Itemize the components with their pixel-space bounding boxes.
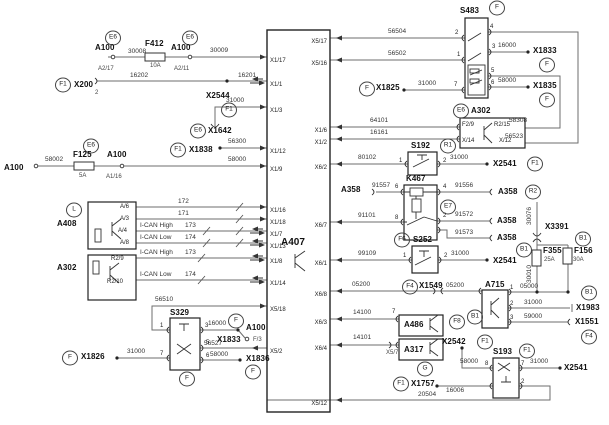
wire-59000: 59000 <box>524 314 542 321</box>
wire-14101: 14101 <box>353 335 371 342</box>
pin-s483-1: 1 <box>457 52 460 58</box>
a407-pin-X5/12: X5/12 <box>311 401 327 407</box>
pin-a715-1: 1 <box>510 285 513 291</box>
sub-30a: 30A <box>573 257 584 263</box>
loc-f-x1835: F <box>539 93 555 108</box>
comp-a358-2: A358 <box>498 188 518 196</box>
a407-pin-X6/4: X6/4 <box>315 346 327 352</box>
loc-f-x1836: F <box>245 365 261 380</box>
comp-s192: S192 <box>411 142 430 150</box>
comp-a358-1: A358 <box>341 186 361 194</box>
a407-pin-X1/16: X1/16 <box>270 208 286 214</box>
pin-a302-f2-9: F2/9 <box>462 122 474 128</box>
pin-s483-5: 5 <box>491 68 494 74</box>
comp-a302-right: A302 <box>471 107 491 115</box>
pin-a302-x-14: X/14 <box>462 138 474 144</box>
loc-f1-x200: F1 <box>55 78 71 93</box>
wire-16000-s329: 16000 <box>208 321 226 328</box>
wire-80102: 80102 <box>358 155 376 162</box>
comp-x1833-tr: X1833 <box>533 47 557 55</box>
sub-x5-7: X5/7 <box>386 350 398 356</box>
label-layer: A407E6A100A2/1730008F41210AE6A100A2/1130… <box>0 0 609 425</box>
pin-k467-8: 8 <box>395 215 398 221</box>
wire-31000-s252: 31000 <box>451 251 469 258</box>
comp-x2541-2: X2541 <box>493 257 517 265</box>
loc-e6-x1642: E6 <box>190 124 206 139</box>
a407-pin-X6/2: X6/2 <box>315 165 327 171</box>
sub-x200-pin2: 2 <box>95 90 98 96</box>
loc-f8: F8 <box>449 315 465 330</box>
pin-a408-a3: A/3 <box>120 216 129 222</box>
pin-s329-6: 6 <box>206 353 209 359</box>
a407-pin-X6/7: X6/7 <box>315 223 327 229</box>
wire-58308: 58308 <box>509 118 527 125</box>
loc-f4-x1549: F4 <box>402 280 418 295</box>
a407-pin-X1/7: X1/7 <box>270 232 282 238</box>
pin-s483-7: 7 <box>454 82 457 88</box>
a407-pin-X1/3: X1/3 <box>270 108 282 114</box>
a407-pin-X1/8: X1/8 <box>270 259 282 265</box>
comp-a358-4: A358 <box>497 234 517 242</box>
comp-x2541-3: X2541 <box>564 364 588 372</box>
wire-16201: 16201 <box>238 73 256 80</box>
a407-pin-X1/17: X1/17 <box>270 58 286 64</box>
wire-ican-low-1: I-CAN Low <box>140 235 171 242</box>
wire-30010: 30010 <box>527 265 534 283</box>
sub-10a: 10A <box>150 63 161 69</box>
wire-31000-x1826: 31000 <box>127 349 145 356</box>
wire-ican-high-1: I-CAN High <box>140 223 173 230</box>
pin-s193-2: 2 <box>521 379 524 385</box>
loc-b1-a715: B1 <box>467 310 483 325</box>
a407-pin-X5/2: X5/2 <box>270 349 282 355</box>
pin-a302-r2-15: R2/15 <box>494 122 510 128</box>
a407-pin-X1/2: X1/2 <box>315 140 327 146</box>
wire-174-1: 174 <box>185 235 196 242</box>
wire-91573: 91573 <box>455 230 473 237</box>
wire-31000-x1825: 31000 <box>418 81 436 88</box>
loc-f-s483: F <box>489 1 505 16</box>
wire-16202: 16202 <box>130 73 148 80</box>
wire-31000-a715: 31000 <box>524 300 542 307</box>
a407-pin-X5/17: X5/17 <box>311 39 327 45</box>
pin-s483-2: 2 <box>455 30 458 36</box>
loc-r2: R2 <box>525 185 541 200</box>
comp-f355: F355 <box>543 247 562 255</box>
pin-a715-3: 3 <box>510 315 513 321</box>
loc-f-s329: F <box>179 372 195 387</box>
loc-f1-x2541-1: F1 <box>527 157 543 172</box>
wire-64101: 64101 <box>370 118 388 125</box>
wire-30009: 30009 <box>210 48 228 55</box>
comp-a358-3: A358 <box>497 217 517 225</box>
a407-pin-X5/16: X5/16 <box>311 61 327 67</box>
comp-f156: F156 <box>574 247 593 255</box>
pin-k467-2: 2 <box>443 213 446 219</box>
comp-a302-left: A302 <box>57 264 77 272</box>
wiring-diagram: A407E6A100A2/1730008F41210AE6A100A2/1130… <box>0 0 609 425</box>
comp-x1549: X1549 <box>419 282 443 290</box>
a407-pin-X1/18: X1/18 <box>270 220 286 226</box>
comp-s252: S252 <box>413 236 432 244</box>
wire-56510: 56510 <box>155 297 173 304</box>
wire-91101: 91101 <box>358 213 376 220</box>
loc-f1-x1838: F1 <box>170 143 186 158</box>
pin-s252-2: 2 <box>444 253 447 259</box>
comp-k467: K467 <box>406 175 426 183</box>
comp-f412: F412 <box>145 40 164 48</box>
loc-b1-f156: B1 <box>575 232 591 247</box>
a407-pin-X1/12: X1/12 <box>270 149 286 155</box>
loc-l-a408: L <box>66 203 82 218</box>
a407-pin-X1/6: X1/6 <box>315 128 327 134</box>
loc-f1-x2542: F1 <box>477 335 493 350</box>
loc-f1-s193: F1 <box>519 344 535 359</box>
pin-s483-4: 4 <box>490 24 493 30</box>
pin-s329-1: 1 <box>160 323 163 329</box>
sub-25a: 25A <box>544 257 555 263</box>
wire-171: 171 <box>178 211 189 218</box>
comp-a317: A317 <box>404 346 424 354</box>
a407-pin-X5/18: X5/18 <box>270 307 286 313</box>
a407-pin-X6/3: X6/3 <box>315 320 327 326</box>
sub-a2-11: A2/11 <box>174 66 189 72</box>
pin-a408-a4: A/4 <box>118 228 127 234</box>
loc-b1-f355: B1 <box>516 243 532 258</box>
wire-58000-s483: 58000 <box>498 78 516 85</box>
a407-pin-X6/8: X6/8 <box>315 292 327 298</box>
pin-a486-7: 7 <box>392 309 395 315</box>
loc-f1-x1757: F1 <box>393 377 409 392</box>
wire-31000-x1642: 31000 <box>226 98 244 105</box>
wire-91556: 91556 <box>455 183 473 190</box>
comp-x1757: X1757 <box>411 380 435 388</box>
loc-f-x1825: F <box>359 82 375 97</box>
loc-e6-a302r: E6 <box>453 104 469 119</box>
pin-k467-6: 6 <box>395 184 398 190</box>
pin-s193-7: 7 <box>521 361 524 367</box>
wire-58002: 58002 <box>45 157 63 164</box>
comp-s329: S329 <box>170 309 189 317</box>
wire-05200-2: 05200 <box>446 283 464 290</box>
wire-174-2: 174 <box>185 272 196 279</box>
wire-16161: 16161 <box>370 130 388 137</box>
wire-58000-s329: 58000 <box>210 352 228 359</box>
wire-05000: 05000 <box>520 284 538 291</box>
wire-58000-s193: 58000 <box>460 359 478 366</box>
comp-s193: S193 <box>493 348 512 356</box>
pin-s192-1: 1 <box>399 158 402 164</box>
wire-ican-high-2: I-CAN High <box>140 250 173 257</box>
sub-a2-17: A2/17 <box>98 66 114 72</box>
comp-f125: F125 <box>73 151 92 159</box>
a407-pin-X6/1: X6/1 <box>315 261 327 267</box>
sub-5a: 5A <box>79 173 86 179</box>
wire-56504: 56504 <box>388 29 406 36</box>
wire-ican-low-2: I-CAN Low <box>140 272 171 279</box>
loc-f-x1833: F <box>539 58 555 73</box>
loc-g: G <box>417 362 433 377</box>
comp-x200: X200 <box>74 81 93 89</box>
wire-58000-x19: 58000 <box>228 157 246 164</box>
a407-pin-X1/13: X1/13 <box>270 244 286 250</box>
pin-s483-6: 6 <box>491 80 494 86</box>
wire-05200-1: 05200 <box>352 282 370 289</box>
comp-a100-4: A100 <box>107 151 127 159</box>
comp-x1983: X1983 <box>576 304 600 312</box>
wire-173-2: 173 <box>185 250 196 257</box>
pin-a302-x-12: X/12 <box>499 138 511 144</box>
comp-x1826: X1826 <box>81 353 105 361</box>
comp-x2542: X2542 <box>442 338 466 346</box>
wire-172: 172 <box>178 199 189 206</box>
wire-56300: 56300 <box>228 139 246 146</box>
wire-173-1: 173 <box>185 223 196 230</box>
loc-f-a100-s329: F <box>228 314 244 329</box>
pin-s329-7: 7 <box>160 351 163 357</box>
comp-x1838: X1838 <box>189 146 213 154</box>
comp-a715: A715 <box>485 281 505 289</box>
loc-f-x1826: F <box>62 351 78 366</box>
pin-s483-3: 3 <box>492 44 495 50</box>
loc-f6: F6 <box>394 233 410 248</box>
sub-a1-16: A1/16 <box>106 174 122 180</box>
loc-f4-x1551: F4 <box>581 330 597 345</box>
pin-s192-2: 2 <box>443 158 446 164</box>
a407-pin-X1/9: X1/9 <box>270 167 282 173</box>
wire-31000-s192: 31000 <box>450 155 468 162</box>
pin-a715-2: 2 <box>510 301 513 307</box>
comp-a100-3: A100 <box>4 164 24 172</box>
loc-r1: R1 <box>440 139 456 154</box>
sub-f3: F/3 <box>253 337 262 343</box>
pin-a302-r2-9: R2/9 <box>111 256 124 262</box>
wire-16000-s483: 16000 <box>498 43 516 50</box>
comp-a100-5: A100 <box>246 324 266 332</box>
comp-a486: A486 <box>404 321 424 329</box>
pin-s252-1: 1 <box>403 253 406 259</box>
a407-pin-X1/1: X1/1 <box>270 82 282 88</box>
pin-a302-r2-10: R2/10 <box>107 279 123 285</box>
wire-16006: 16006 <box>446 388 464 395</box>
pin-a408-a8: A/8 <box>120 240 129 246</box>
comp-x1551: X1551 <box>575 318 599 326</box>
wire-91572: 91572 <box>455 212 473 219</box>
wire-91557: 91557 <box>372 183 390 190</box>
wire-30076: 30076 <box>527 207 534 225</box>
wire-31000-s193: 31000 <box>530 359 548 366</box>
comp-x1825: X1825 <box>376 84 400 92</box>
comp-x1835: X1835 <box>533 82 557 90</box>
pin-s193-8: 8 <box>485 361 488 367</box>
wire-56502: 56502 <box>388 51 406 58</box>
comp-a100-2: A100 <box>171 44 191 52</box>
comp-x2541-1: X2541 <box>493 160 517 168</box>
wire-20504: 20504 <box>418 392 436 399</box>
comp-a100-1: A100 <box>95 44 115 52</box>
comp-x1642: X1642 <box>208 127 232 135</box>
loc-f1-x2544: F1 <box>221 103 237 118</box>
a407-pin-X1/14: X1/14 <box>270 281 286 287</box>
wire-99109: 99109 <box>358 251 376 258</box>
comp-x3391: X3391 <box>545 223 569 231</box>
loc-b1-x1983: B1 <box>581 286 597 301</box>
wire-14100: 14100 <box>353 310 371 317</box>
comp-x1836: X1836 <box>246 355 270 363</box>
wire-56527: 56527 <box>204 341 222 348</box>
wire-30008: 30008 <box>128 49 146 56</box>
comp-a408: A408 <box>57 220 77 228</box>
pin-k467-4: 4 <box>443 184 446 190</box>
pin-a408-a6: A/6 <box>120 204 129 210</box>
comp-s483: S483 <box>460 7 479 15</box>
